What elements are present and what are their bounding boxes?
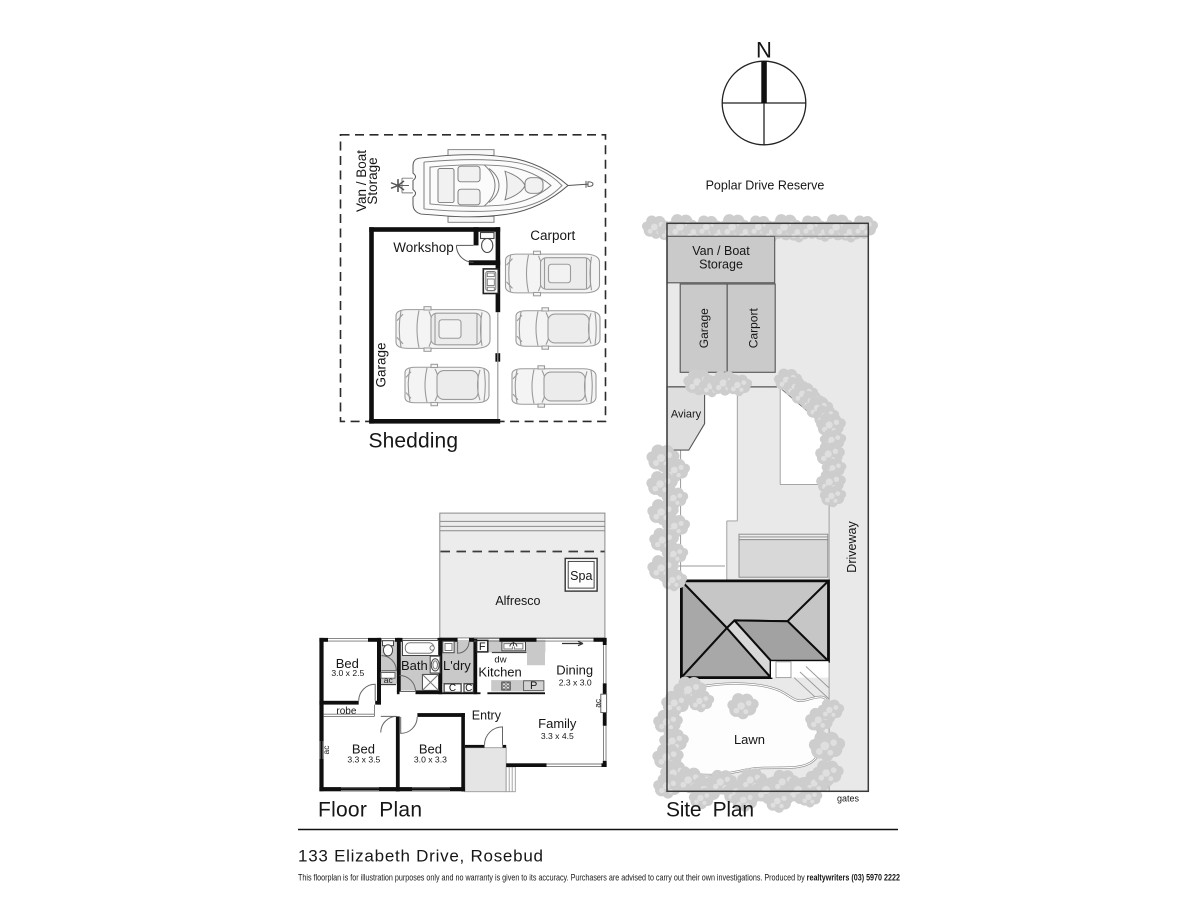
svg-text:Van / Boat: Van / Boat: [692, 244, 750, 258]
svg-text:Family: Family: [538, 716, 577, 731]
svg-text:Site Plan: Site Plan: [666, 799, 754, 822]
svg-text:Spa: Spa: [570, 569, 592, 583]
svg-text:Garage: Garage: [697, 308, 711, 348]
svg-text:robe: robe: [336, 706, 356, 717]
svg-text:Storage: Storage: [365, 157, 380, 204]
svg-text:3.3 x 4.5: 3.3 x 4.5: [541, 731, 574, 741]
svg-text:C: C: [465, 683, 472, 694]
svg-text:Carport: Carport: [530, 228, 575, 243]
svg-text:Entry: Entry: [472, 709, 502, 723]
svg-text:Carport: Carport: [746, 308, 760, 349]
svg-text:Aviary: Aviary: [671, 409, 702, 421]
svg-text:Floor Plan: Floor Plan: [318, 799, 422, 822]
svg-text:Driveway: Driveway: [845, 521, 859, 573]
svg-text:ac: ac: [384, 675, 394, 685]
svg-text:ac: ac: [593, 698, 603, 708]
svg-text:Workshop: Workshop: [393, 240, 454, 255]
svg-text:This floorplan is for illustra: This floorplan is for illustration purpo…: [298, 873, 900, 883]
svg-text:Poplar Drive Reserve: Poplar Drive Reserve: [706, 179, 825, 193]
svg-text:Shedding: Shedding: [369, 430, 459, 453]
svg-text:3.0 x 3.3: 3.0 x 3.3: [414, 754, 447, 764]
svg-text:Kitchen: Kitchen: [478, 664, 521, 679]
svg-text:Lawn: Lawn: [734, 732, 765, 747]
svg-text:133 Elizabeth Drive, Rosebud: 133 Elizabeth Drive, Rosebud: [298, 847, 543, 866]
svg-text:ac: ac: [321, 745, 331, 755]
svg-text:Garage: Garage: [374, 342, 389, 387]
svg-text:Dining: Dining: [556, 662, 593, 677]
svg-text:Storage: Storage: [699, 258, 743, 272]
svg-text:Alfresco: Alfresco: [495, 594, 540, 608]
svg-text:N: N: [756, 38, 772, 63]
svg-text:P: P: [530, 680, 537, 692]
svg-text:3.3 x 3.5: 3.3 x 3.5: [347, 754, 380, 764]
svg-text:C: C: [449, 683, 456, 694]
svg-text:F: F: [479, 641, 486, 653]
svg-text:Bath: Bath: [401, 658, 428, 673]
svg-text:gates: gates: [837, 794, 860, 804]
svg-text:3.0 x 2.5: 3.0 x 2.5: [331, 668, 364, 678]
svg-text:2.3 x 3.0: 2.3 x 3.0: [559, 677, 592, 687]
svg-text:L'dry: L'dry: [443, 658, 471, 673]
